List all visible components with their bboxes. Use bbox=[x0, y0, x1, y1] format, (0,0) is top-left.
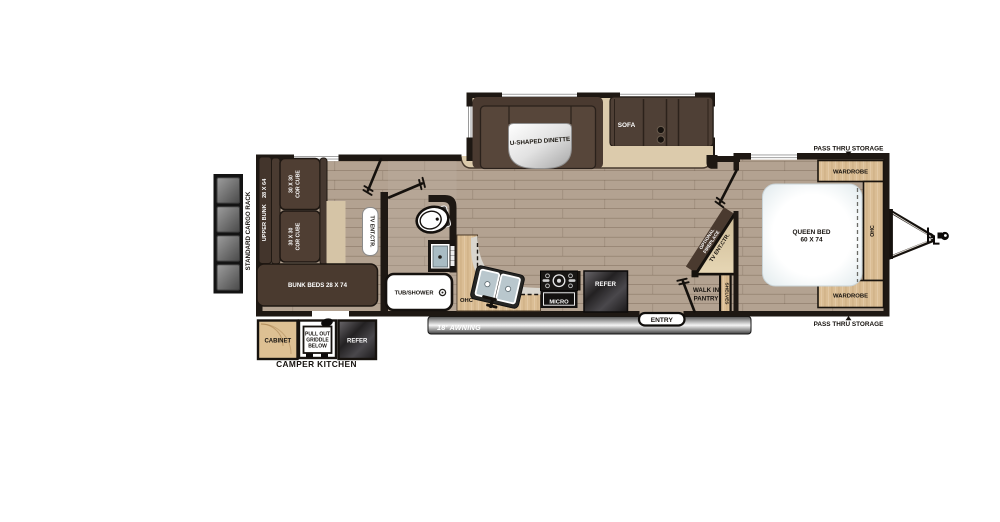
svg-text:OHC: OHC bbox=[870, 225, 876, 237]
svg-text:COR CUBE: COR CUBE bbox=[296, 222, 302, 250]
svg-text:UPPER BUNK 28 X 64: UPPER BUNK 28 X 64 bbox=[262, 178, 268, 241]
svg-text:OHC: OHC bbox=[460, 298, 474, 304]
svg-text:PASS THRU STORAGE: PASS THRU STORAGE bbox=[814, 321, 884, 328]
svg-text:MICRO: MICRO bbox=[549, 300, 569, 306]
svg-text:30 X 30: 30 X 30 bbox=[288, 227, 294, 245]
svg-text:TUB/SHOWER: TUB/SHOWER bbox=[395, 291, 434, 297]
svg-text:PASS THRU STORAGE: PASS THRU STORAGE bbox=[814, 146, 884, 153]
svg-text:REFER: REFER bbox=[347, 339, 368, 345]
svg-text:SOFA: SOFA bbox=[618, 122, 636, 129]
svg-text:WARDROBE: WARDROBE bbox=[833, 170, 868, 176]
svg-text:BUNK BEDS 28 X 74: BUNK BEDS 28 X 74 bbox=[288, 282, 348, 289]
svg-text:WALK IN: WALK IN bbox=[693, 287, 720, 294]
svg-text:30 X 30: 30 X 30 bbox=[288, 175, 294, 193]
svg-text:CAMPER KITCHEN: CAMPER KITCHEN bbox=[276, 359, 357, 369]
svg-text:ENTRY: ENTRY bbox=[651, 317, 674, 324]
svg-text:18' AWNING: 18' AWNING bbox=[437, 323, 481, 332]
svg-text:COR CUBE: COR CUBE bbox=[296, 170, 302, 198]
svg-text:SHELVES: SHELVES bbox=[724, 282, 730, 305]
svg-text:CABINET: CABINET bbox=[264, 339, 291, 345]
svg-text:60 X 74: 60 X 74 bbox=[800, 237, 822, 244]
svg-text:STANDARD CARGO RACK: STANDARD CARGO RACK bbox=[245, 191, 252, 270]
svg-text:PANTRY: PANTRY bbox=[694, 296, 720, 303]
svg-text:REFER: REFER bbox=[595, 281, 617, 288]
svg-text:TV ENT.CTR.: TV ENT.CTR. bbox=[369, 215, 375, 248]
svg-text:BELOW: BELOW bbox=[308, 344, 327, 350]
svg-text:WARDROBE: WARDROBE bbox=[833, 294, 868, 300]
svg-text:QUEEN BED: QUEEN BED bbox=[793, 229, 831, 236]
